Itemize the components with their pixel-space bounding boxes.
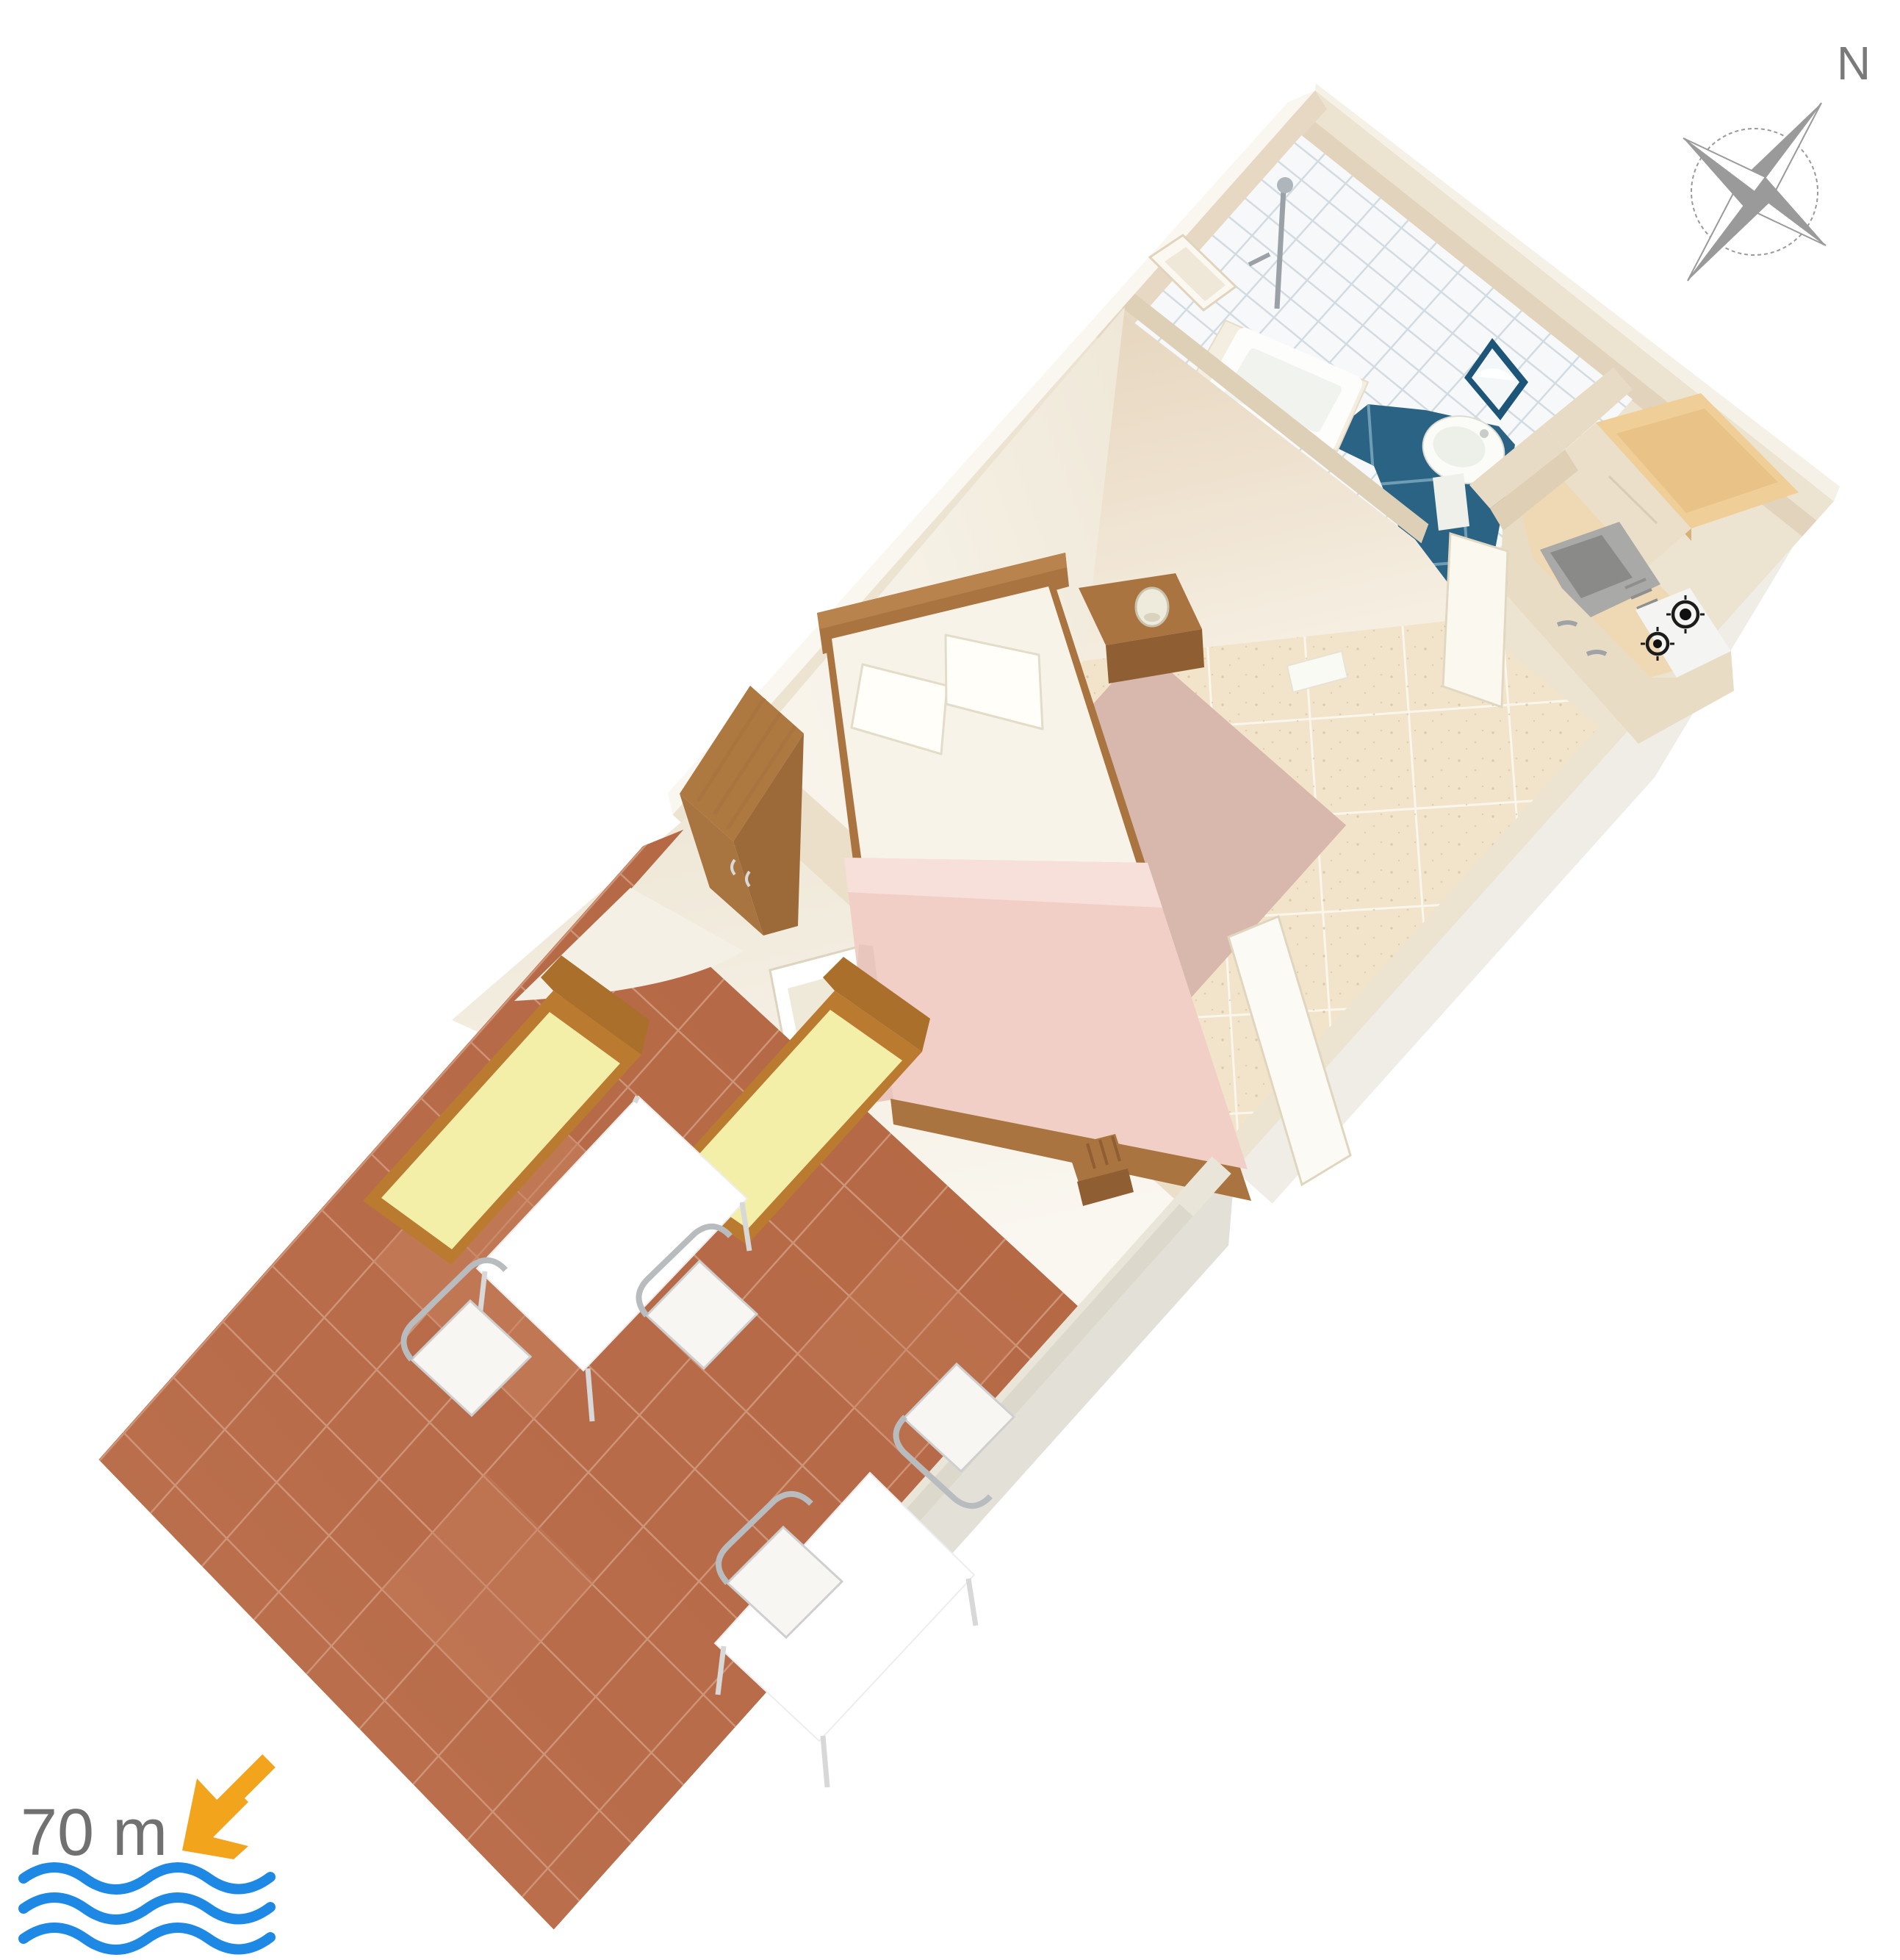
svg-text:70 m: 70 m bbox=[21, 1796, 168, 1870]
svg-text:N: N bbox=[1837, 37, 1871, 90]
